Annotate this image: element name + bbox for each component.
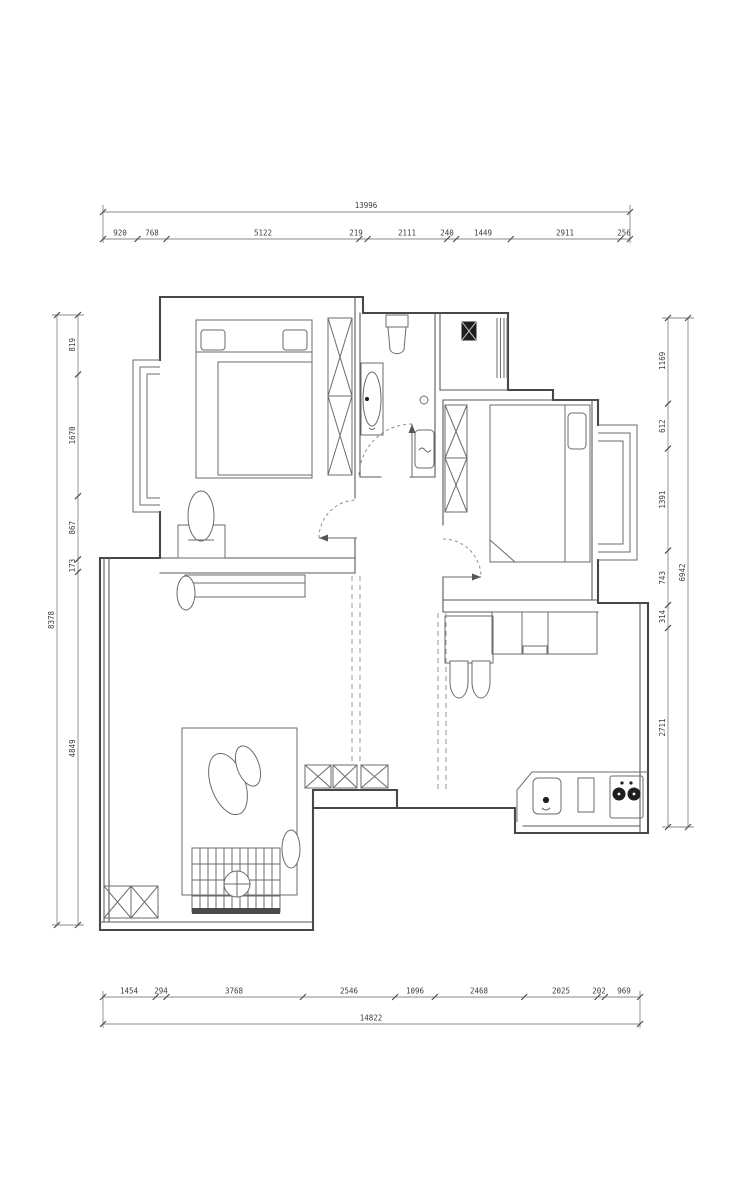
room-bedroom-1: [178, 318, 352, 558]
dimension-left: 8378 819 1670 867 173 4849: [47, 312, 84, 928]
floor-plan-drawing: 13996 920 768 5122 219 2111 240 1449 291…: [0, 0, 750, 1200]
dim-bottom-seg: 2468: [470, 987, 489, 996]
dim-top-seg: 920: [113, 229, 127, 238]
open-plan-boundaries: [352, 576, 446, 789]
dim-top-seg: 5122: [254, 229, 272, 238]
dimension-bottom: 1454 294 3768 2546 1096 2468 2025 202 96…: [100, 987, 643, 1029]
dim-top-seg: 256: [617, 229, 631, 238]
dining-table-icon: [445, 616, 493, 663]
bay-window-right-icon: [598, 425, 637, 560]
room-kitchen: [517, 772, 648, 822]
dim-bottom-seg: 3768: [225, 987, 244, 996]
dim-right-seg: 314: [658, 609, 667, 623]
dim-right-seg: 1169: [658, 352, 667, 370]
side-cushion-icon: [282, 830, 300, 868]
room-bathroom: [361, 315, 434, 468]
door-swing-bedroom-2-icon: [443, 539, 481, 581]
room-bedroom-2: [445, 405, 590, 562]
door-swing-bedroom-1-icon: [319, 500, 357, 542]
washing-machine-icon: [415, 430, 434, 468]
dim-top-seg: 1449: [474, 229, 492, 238]
room-living: [104, 575, 388, 918]
dim-top-seg: 2111: [398, 229, 416, 238]
interior-walls: [100, 297, 640, 922]
daybed-grid-icon: [192, 848, 280, 914]
dim-left-seg: 4849: [68, 739, 77, 757]
plant-icon: [177, 576, 195, 610]
corner-cabinet-x-hatch-icon: [104, 886, 158, 918]
dimension-right: 1169 612 1391 743 314 2711 6942: [658, 315, 694, 830]
dim-bottom-seg: 2546: [340, 987, 359, 996]
dimension-top: 13996 920 768 5122 219 2111 240 1449 291…: [100, 201, 633, 243]
washbasin-icon: [361, 363, 383, 435]
floor-plan-sheet: 13996 920 768 5122 219 2111 240 1449 291…: [0, 0, 750, 1200]
floor-drain-icon: [420, 396, 428, 404]
window-slats-utility-icon: [497, 318, 507, 378]
dim-top-total: 13996: [355, 201, 378, 210]
dim-bottom-seg: 1096: [406, 987, 425, 996]
dim-right-seg: 2711: [658, 718, 667, 736]
counter-divider-icon: [578, 778, 594, 812]
dim-right-seg: 612: [658, 419, 667, 433]
dim-left-total: 8378: [47, 610, 56, 629]
dining-chairs-icon: [450, 661, 490, 698]
dim-top-seg: 768: [145, 229, 159, 238]
room-dining: [445, 612, 597, 698]
dim-left-seg: 173: [68, 559, 77, 573]
dim-left-seg: 867: [68, 521, 77, 535]
tv-console-x-hatch-icon: [305, 765, 388, 788]
dim-right-total: 6942: [678, 563, 687, 581]
dim-top-seg: 240: [440, 229, 454, 238]
double-bed-icon: [196, 320, 312, 478]
dim-right-seg: 1391: [658, 491, 667, 509]
dim-bottom-seg: 1454: [120, 987, 139, 996]
dim-bottom-seg: 969: [617, 987, 631, 996]
dim-bottom-seg: 294: [154, 987, 168, 996]
dim-bottom-total: 14822: [360, 1014, 383, 1023]
dim-left-seg: 819: [68, 338, 77, 352]
dressing-table-icon: [178, 491, 225, 558]
wardrobe-icon: [328, 318, 352, 475]
dim-bottom-seg: 202: [592, 987, 606, 996]
wardrobe-2-icon: [445, 405, 467, 512]
toilet-icon: [386, 315, 408, 354]
door-swing-bathroom-icon: [359, 424, 416, 477]
dim-top-seg: 2911: [556, 229, 574, 238]
dim-left-seg: 1670: [68, 426, 77, 445]
dim-right-seg: 743: [658, 571, 667, 585]
sideboard-cabinet-icon: [492, 612, 597, 654]
sideboard-icon: [185, 575, 305, 597]
floor-lamp-icon: [201, 743, 265, 820]
single-bed-icon: [490, 405, 590, 562]
sink-icon: [533, 778, 561, 814]
dim-top-seg: 219: [349, 229, 363, 238]
bay-window-left-icon: [133, 360, 160, 512]
room-utility: [462, 322, 476, 340]
water-heater-icon: [462, 322, 476, 340]
gas-stove-icon: [610, 776, 643, 818]
dim-bottom-seg: 2025: [552, 987, 570, 996]
